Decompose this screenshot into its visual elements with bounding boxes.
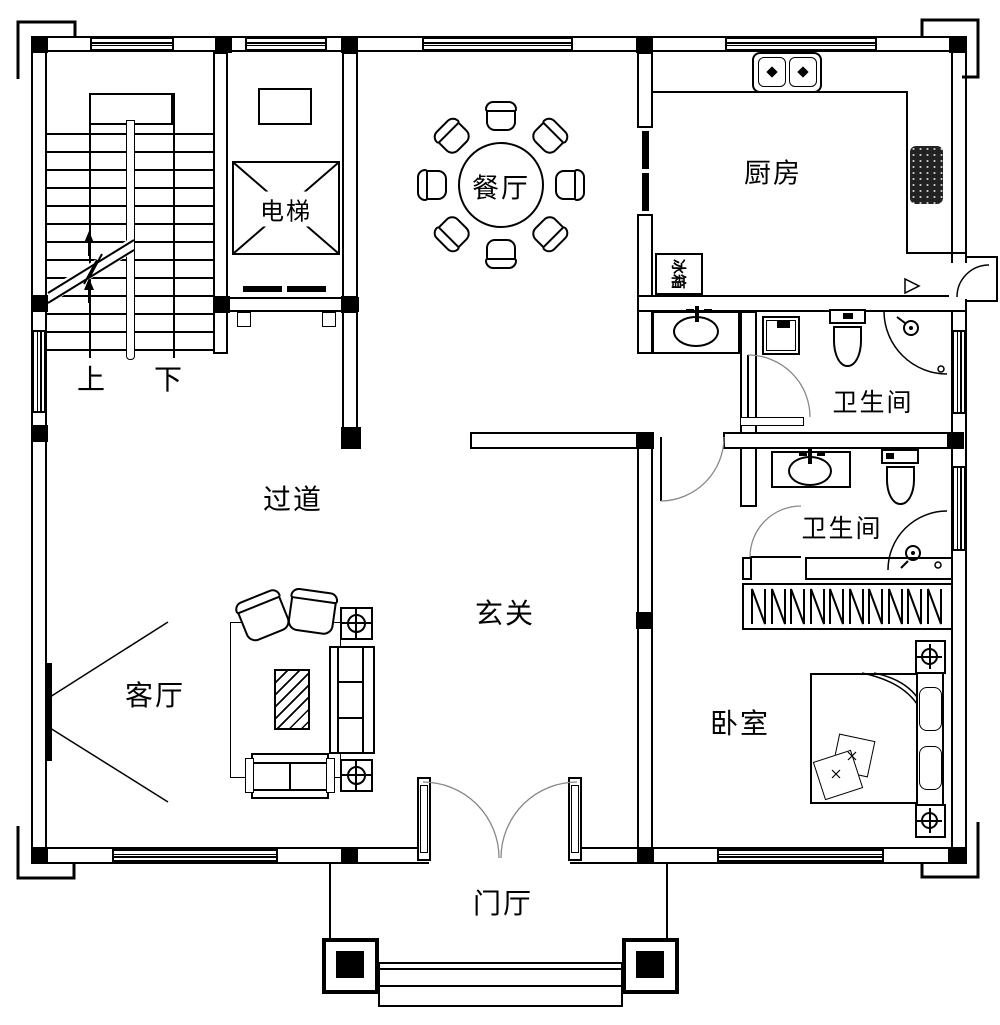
room-label-bedroom: 卧室 (710, 702, 770, 742)
wall-elevator-right (342, 52, 358, 432)
wall-bath2-bottom-east (805, 557, 953, 580)
stair-label-down: 下 (154, 358, 184, 398)
window-right-1 (952, 330, 966, 414)
faucet-icon (704, 309, 712, 313)
stove-symbol (910, 146, 943, 204)
column (215, 36, 232, 53)
elevator-door-dash (287, 286, 326, 292)
wall-left (31, 36, 47, 864)
wall-hall-band-west (470, 432, 654, 449)
lamp-icon (347, 766, 366, 785)
counter-edge (906, 252, 967, 254)
dining-chair (486, 239, 516, 264)
elevator-machine (258, 88, 312, 125)
window-top-3 (422, 37, 573, 51)
entry-door-jamb-inner (571, 785, 579, 853)
sofa-three-seat (329, 646, 375, 754)
column (31, 425, 48, 442)
column (636, 612, 653, 629)
column (213, 296, 230, 313)
toilet-button (843, 313, 853, 319)
loveseat-armrest (326, 758, 335, 793)
elevator-jamb (322, 312, 336, 327)
stair-label-up: 上 (77, 358, 107, 398)
toilet-button (886, 453, 894, 459)
loveseat-armrest (245, 758, 254, 793)
lamp-icon (921, 648, 938, 665)
stair-flight-line (173, 93, 175, 358)
elevator-door-dash (243, 286, 282, 292)
sofa-line (337, 648, 339, 752)
shower-head-icon (911, 551, 915, 555)
room-label-hallway: 过道 (263, 478, 323, 518)
fridge-label: 冰箱 (669, 259, 690, 289)
loveseat-line (289, 762, 291, 790)
wall-kitchen-left-a (637, 52, 653, 128)
porch-step-line (380, 968, 621, 970)
drain-icon (938, 366, 944, 372)
counter-edge (906, 91, 908, 254)
column (636, 36, 653, 53)
dining-chair (555, 170, 580, 200)
sofa-line (338, 681, 363, 683)
wall-kitchen-left-b (637, 214, 653, 354)
window-bottom-2 (717, 849, 884, 862)
wall-bath1-threshold (740, 417, 804, 426)
window-right-2 (952, 466, 966, 551)
toilet-bowl (833, 326, 862, 367)
opening-diagonal (50, 728, 168, 802)
column (637, 847, 654, 864)
wall-bedroom-left (637, 432, 653, 864)
porch-edge (666, 864, 668, 938)
dining-chair (486, 106, 516, 131)
kitchen-exterior-step (965, 256, 998, 302)
dining-chair (435, 119, 474, 158)
shower-head-stem (897, 317, 905, 323)
sliding-door-leaf (642, 173, 649, 211)
door-swing-arc (750, 506, 801, 557)
shower-head-icon (909, 326, 913, 330)
toilet-bowl (886, 466, 915, 505)
coffee-table (274, 669, 310, 730)
wall-bath2-bottom-west (742, 557, 752, 580)
shower-head-icon (904, 321, 918, 335)
wall-hall-band-east (723, 432, 964, 449)
window-top-1 (90, 37, 174, 51)
faucet-icon (799, 452, 807, 456)
floor-plan: 冰箱 (0, 0, 1000, 1025)
stair-flight-line (89, 125, 91, 358)
porch-edge (329, 864, 331, 938)
porch-pillar-core (636, 951, 664, 978)
room-label-elevator: 电梯 (258, 192, 314, 227)
stair-stringer (126, 120, 135, 360)
faucet-icon (808, 449, 812, 464)
wall-right (951, 36, 967, 864)
armchair (287, 592, 338, 636)
column (31, 295, 48, 312)
dining-chair (435, 213, 474, 252)
column (636, 432, 653, 449)
window-left-1 (32, 330, 46, 413)
entry-door-jamb-inner (420, 785, 428, 853)
door-swing-arc (748, 355, 810, 417)
porch-step-line (380, 985, 621, 987)
elevator-jamb (237, 312, 251, 327)
sofa-line (338, 717, 363, 719)
column (948, 847, 965, 864)
door-swing-arc (661, 437, 724, 501)
dining-chair (422, 170, 447, 200)
wardrobe-symbol (742, 583, 953, 630)
column (31, 847, 48, 864)
window-bottom-1 (112, 849, 278, 862)
room-label-bathroom-upper: 卫生间 (832, 383, 913, 419)
faucet-icon (686, 309, 694, 313)
porch-pillar-core (336, 951, 364, 978)
column (341, 427, 361, 449)
column (949, 36, 966, 53)
room-label-dining: 餐厅 (472, 167, 530, 206)
window-top-2 (245, 37, 327, 51)
faucet-icon (695, 306, 699, 322)
french-window-marker (47, 663, 52, 761)
window-top-4 (725, 37, 877, 51)
column (947, 432, 964, 449)
lamp-icon (347, 614, 366, 633)
wall-under-elevator (213, 297, 359, 312)
dining-chair (529, 213, 568, 252)
sliding-door-leaf (642, 131, 649, 169)
washing-machine-panel (777, 320, 790, 328)
pillow (919, 687, 942, 731)
column (341, 36, 358, 53)
dining-chair (529, 119, 568, 158)
room-label-foyer: 门厅 (473, 882, 533, 922)
column (31, 36, 48, 53)
shower-arc (884, 312, 947, 374)
faucet-icon (817, 452, 825, 456)
column (341, 296, 358, 313)
wall-bath-divider (740, 311, 757, 507)
room-label-kitchen: 厨房 (744, 152, 802, 191)
kitchen-door-opening (949, 263, 969, 299)
room-label-bathroom-lower: 卫生间 (801, 509, 882, 545)
room-label-entry-hall: 玄关 (475, 592, 535, 632)
lamp-icon (921, 812, 938, 829)
door-direction-icon (905, 279, 919, 293)
pillow (919, 746, 942, 790)
room-label-living: 客厅 (125, 674, 185, 714)
column (341, 847, 358, 864)
sofa-line (362, 648, 364, 752)
entry-opening (429, 845, 570, 865)
